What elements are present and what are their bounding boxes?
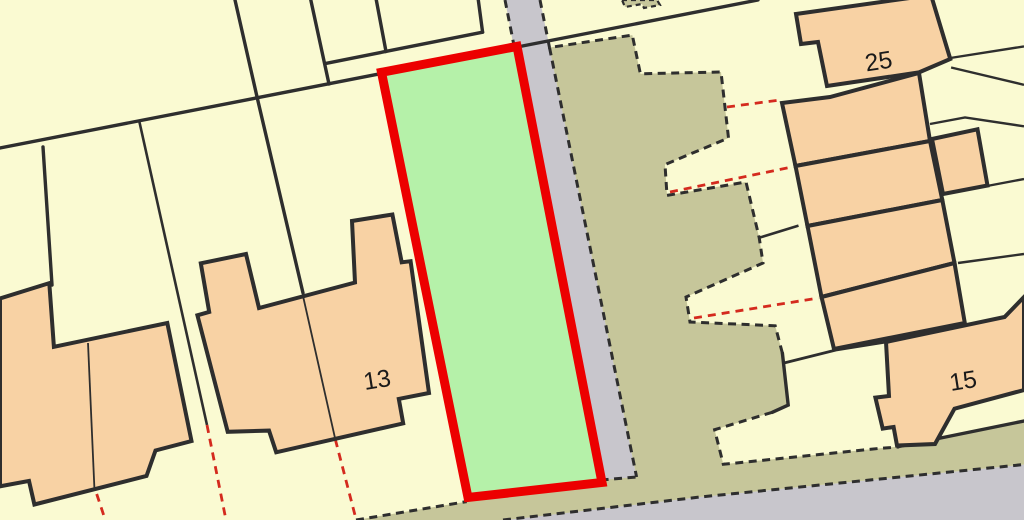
svg-text:25: 25	[863, 47, 894, 78]
svg-text:13: 13	[362, 365, 393, 396]
svg-text:15: 15	[948, 366, 979, 397]
